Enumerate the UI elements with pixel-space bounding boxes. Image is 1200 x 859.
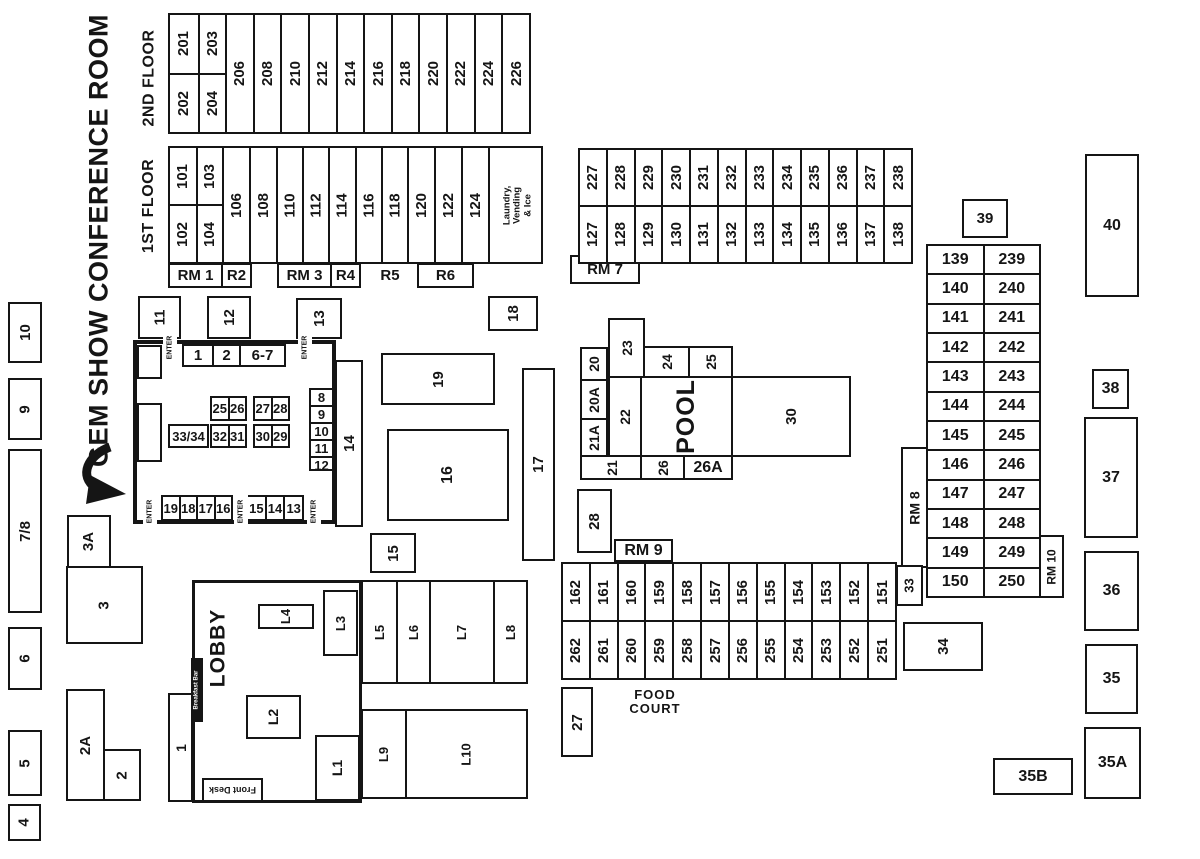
- table-33-34: 33/34: [168, 424, 209, 448]
- bottom-tables-left: 19181716: [161, 495, 233, 521]
- room-cell: 246: [985, 449, 1040, 478]
- room-cell: 150: [928, 567, 983, 596]
- room-cell: 155: [756, 564, 784, 620]
- room-7-8: 7/8: [8, 449, 42, 613]
- room-25: 25: [688, 346, 733, 378]
- table-27-28: 2728: [253, 396, 290, 421]
- table-cell: 26: [228, 398, 246, 419]
- room-202: 202: [170, 75, 198, 133]
- room-cell: 154: [784, 564, 812, 620]
- lobby-units-l9-l10: L9 L10: [361, 709, 528, 799]
- table-cell: 18: [179, 497, 197, 519]
- room-40: 40: [1085, 154, 1139, 297]
- room-37: 37: [1084, 417, 1138, 538]
- room-cell: 227: [580, 150, 606, 205]
- room-cell: 108: [249, 148, 276, 262]
- room-cell: 127: [580, 207, 606, 262]
- wall-alcove: [137, 403, 162, 462]
- conference-top-tables: 1 2 6-7: [182, 344, 286, 367]
- rm9-label: RM 9: [614, 539, 673, 562]
- first-floor-strip: 101 102 103 104 106108110112114116118120…: [168, 146, 543, 264]
- room-cell: 157: [700, 564, 728, 620]
- table-cell: 14: [265, 497, 284, 519]
- room-cell: 133: [745, 207, 773, 262]
- table-30-29: 3029: [253, 424, 290, 448]
- rooms-20-strip: 20 20A 21A: [580, 347, 608, 457]
- lobby-unit-l10: L10: [405, 711, 526, 797]
- room-cell: 162: [563, 564, 589, 620]
- table-cell: 32: [212, 426, 228, 446]
- room-cell: 143: [928, 361, 983, 390]
- table-cell: 11: [311, 439, 332, 456]
- room-36: 36: [1084, 551, 1139, 631]
- room-cell: 206: [225, 15, 253, 132]
- room-cell: 254: [784, 622, 812, 678]
- room-23: 23: [608, 318, 645, 378]
- room-cell: 132: [717, 207, 745, 262]
- room-33: 33: [896, 565, 923, 606]
- room-cell: 210: [280, 15, 308, 132]
- room-30: 30: [731, 376, 851, 457]
- room-104: 104: [198, 206, 222, 262]
- room-cell: 236: [828, 150, 856, 205]
- room-cell: 152: [839, 564, 867, 620]
- table-1: 1: [184, 346, 212, 365]
- table-cell: 30: [255, 426, 271, 446]
- curved-arrow-icon: [72, 442, 142, 508]
- room-3: 3: [66, 566, 143, 644]
- table-cell: 16: [214, 497, 232, 519]
- enter-door: ENTER: [307, 494, 321, 528]
- room-2a: 2A: [66, 689, 105, 801]
- room-15: 15: [370, 533, 416, 573]
- rm10-label: RM 10: [1039, 535, 1064, 598]
- food-court-label: FOOD COURT: [605, 682, 705, 722]
- lobby-unit-l8: L8: [493, 582, 526, 682]
- room-cell: 251: [867, 622, 895, 678]
- room-cell: 149: [928, 537, 983, 566]
- room-cell: 234: [772, 150, 800, 205]
- room-1: 1: [168, 693, 193, 802]
- room-cell: 260: [617, 622, 645, 678]
- room-cell: 248: [985, 508, 1040, 537]
- room-cell: 229: [634, 150, 662, 205]
- room-cell: 222: [446, 15, 474, 132]
- r6-label: R6: [417, 263, 474, 288]
- room-38: 38: [1092, 369, 1129, 409]
- room-19: 19: [381, 353, 495, 405]
- room-20: 20: [582, 349, 606, 379]
- lobby-units-l5-l8: L5 L6 L7 L8: [361, 580, 528, 684]
- side-table-stack: 89101112: [309, 388, 334, 471]
- room-cell: 250: [985, 567, 1040, 596]
- enter-door: ENTER: [163, 330, 177, 364]
- room-cell: 106: [222, 148, 249, 262]
- room-cell: 230: [661, 150, 689, 205]
- table-cell: 15: [248, 497, 265, 519]
- rm1-label: RM 1: [170, 265, 221, 286]
- lobby-unit-l3: L3: [323, 590, 358, 656]
- r4-label: R4: [330, 265, 359, 286]
- wall-alcove: [137, 345, 162, 379]
- second-floor-strip: 201 202 203 204 206208210212214216218220…: [168, 13, 531, 134]
- room-21a: 21A: [582, 418, 606, 455]
- room-cell: 244: [985, 391, 1040, 420]
- room-22: 22: [608, 376, 642, 457]
- laundry-vending-ice: Laundry, Vending & Ice: [488, 148, 546, 262]
- lobby-label: LOBBY: [198, 590, 238, 705]
- room-6: 6: [8, 627, 42, 690]
- page-title: GEM SHOW CONFERENCE ROOM: [76, 20, 122, 462]
- room-cell: 242: [985, 332, 1040, 361]
- room-26: 26: [640, 455, 685, 480]
- room-cell: 156: [728, 564, 756, 620]
- enter-door: ENTER: [234, 494, 248, 528]
- room-cell: 243: [985, 361, 1040, 390]
- room-cell: 258: [672, 622, 700, 678]
- room-cell: 122: [434, 148, 461, 262]
- room-cell: 235: [800, 150, 828, 205]
- room-cell: 249: [985, 537, 1040, 566]
- table-2: 2: [212, 346, 239, 365]
- table-cell: 10: [311, 422, 332, 439]
- room-3a: 3A: [67, 515, 111, 568]
- room-21: 21: [580, 455, 643, 480]
- table-cell: 19: [163, 497, 179, 519]
- room-26a: 26A: [683, 455, 733, 480]
- room-cell: 259: [644, 622, 672, 678]
- room-28: 28: [577, 489, 612, 553]
- room-cell: 151: [867, 564, 895, 620]
- room-cell: 159: [644, 564, 672, 620]
- enter-door: ENTER: [143, 494, 157, 528]
- room-14: 14: [335, 360, 363, 527]
- east-room-table: 139140141142143144145146147148149150 239…: [926, 244, 1041, 598]
- room-18: 18: [488, 296, 538, 331]
- room-cell: 214: [336, 15, 364, 132]
- room-204: 204: [200, 75, 226, 133]
- room-cell: 142: [928, 332, 983, 361]
- food-court-room-block: 162161160159158157156155154153152151 262…: [561, 562, 897, 680]
- room-24: 24: [643, 346, 690, 378]
- first-floor-label: 1ST FLOOR: [134, 146, 164, 266]
- room-cell: 136: [828, 207, 856, 262]
- room-cell: 160: [617, 564, 645, 620]
- room-cell: 220: [418, 15, 446, 132]
- second-floor-label: 2ND FLOOR: [134, 18, 164, 138]
- room-cell: 128: [606, 207, 634, 262]
- room-cell: 218: [391, 15, 419, 132]
- north-room-block: 227228229230231232233234235236237238 127…: [578, 148, 913, 264]
- room-cell: 232: [717, 150, 745, 205]
- enter-door: ENTER: [298, 330, 312, 364]
- rm1-r2-box: RM 1 R2: [168, 263, 252, 288]
- room-4: 4: [8, 804, 41, 841]
- room-35a: 35A: [1084, 727, 1141, 799]
- lobby-unit-l4: L4: [258, 604, 314, 629]
- room-cell: 118: [381, 148, 407, 262]
- room-cell: 247: [985, 479, 1040, 508]
- room-cell: 208: [253, 15, 281, 132]
- table-25-26: 2526: [210, 396, 247, 421]
- room-17: 17: [522, 368, 555, 561]
- room-cell: 137: [856, 207, 884, 262]
- room-cell: 147: [928, 479, 983, 508]
- room-cell: 112: [302, 148, 328, 262]
- table-cell: 12: [311, 456, 332, 473]
- room-9: 9: [8, 378, 42, 440]
- room-39: 39: [962, 199, 1008, 238]
- front-desk: Front Desk: [202, 778, 263, 802]
- table-cell: 17: [196, 497, 214, 519]
- room-cell: 224: [474, 15, 502, 132]
- room-cell: 252: [839, 622, 867, 678]
- room-cell: 124: [461, 148, 488, 262]
- room-cell: 158: [672, 564, 700, 620]
- table-32-31: 3231: [210, 424, 247, 448]
- table-cell: 28: [271, 398, 289, 419]
- room-cell: 262: [563, 622, 589, 678]
- room-cell: 240: [985, 273, 1040, 302]
- room-cell: 257: [700, 622, 728, 678]
- lobby-unit-l6: L6: [396, 582, 429, 682]
- room-cell: 138: [883, 207, 911, 262]
- room-cell: 145: [928, 420, 983, 449]
- room-2: 2: [103, 749, 141, 801]
- table-cell: 25: [212, 398, 228, 419]
- room-cell: 256: [728, 622, 756, 678]
- room-cell: 239: [985, 246, 1040, 273]
- room-cell: 231: [689, 150, 717, 205]
- room-10: 10: [8, 302, 42, 363]
- room-cell: 238: [883, 150, 911, 205]
- room-5: 5: [8, 730, 42, 796]
- room-cell: 116: [355, 148, 381, 262]
- table-cell: 13: [283, 497, 302, 519]
- room-35: 35: [1085, 644, 1138, 714]
- room-cell: 131: [689, 207, 717, 262]
- room-cell: 135: [800, 207, 828, 262]
- room-34: 34: [903, 622, 983, 671]
- r5-label: R5: [360, 263, 420, 288]
- room-cell: 212: [308, 15, 336, 132]
- table-6-7: 6-7: [239, 346, 284, 365]
- room-cell: 255: [756, 622, 784, 678]
- room-20a: 20A: [582, 379, 606, 418]
- room-cell: 129: [634, 207, 662, 262]
- bottom-tables-right: 151413: [246, 495, 304, 521]
- room-cell: 148: [928, 508, 983, 537]
- room-cell: 130: [661, 207, 689, 262]
- room-cell: 226: [501, 15, 529, 132]
- lobby-unit-l2: L2: [246, 695, 301, 739]
- room-27: 27: [561, 687, 593, 757]
- room-cell: 144: [928, 391, 983, 420]
- room-cell: 237: [856, 150, 884, 205]
- room-201: 201: [170, 15, 198, 75]
- rm3-r4-box: RM 3 R4: [277, 263, 361, 288]
- room-cell: 161: [589, 564, 617, 620]
- room-cell: 228: [606, 150, 634, 205]
- rm8-label: RM 8: [901, 447, 928, 568]
- room-102: 102: [170, 206, 196, 262]
- lobby-unit-l9: L9: [363, 711, 405, 797]
- room-203: 203: [200, 15, 226, 75]
- floor-plan: GEM SHOW CONFERENCE ROOM 2ND FLOOR 1ST F…: [0, 0, 1200, 859]
- room-cell: 233: [745, 150, 773, 205]
- table-cell: 27: [255, 398, 271, 419]
- room-cell: 216: [363, 15, 391, 132]
- room-12: 12: [207, 296, 251, 339]
- r2-label: R2: [221, 265, 250, 286]
- lobby-unit-l1: L1: [315, 735, 360, 801]
- table-cell: 8: [311, 390, 332, 405]
- room-cell: 253: [811, 622, 839, 678]
- room-cell: 241: [985, 303, 1040, 332]
- table-cell: 31: [228, 426, 246, 446]
- room-cell: 114: [328, 148, 354, 262]
- room-cell: 261: [589, 622, 617, 678]
- room-cell: 120: [407, 148, 434, 262]
- room-cell: 134: [772, 207, 800, 262]
- room-cell: 141: [928, 303, 983, 332]
- room-cell: 139: [928, 246, 983, 273]
- room-cell: 110: [276, 148, 302, 262]
- pool-area: POOL: [640, 376, 733, 457]
- room-cell: 146: [928, 449, 983, 478]
- room-cell: 245: [985, 420, 1040, 449]
- rm3-label: RM 3: [279, 265, 330, 286]
- lobby-unit-l5: L5: [363, 582, 396, 682]
- room-cell: 140: [928, 273, 983, 302]
- room-16: 16: [387, 429, 509, 521]
- table-cell: 29: [271, 426, 289, 446]
- table-cell: 9: [311, 405, 332, 422]
- lobby-unit-l7: L7: [429, 582, 493, 682]
- room-cell: 153: [811, 564, 839, 620]
- room-103: 103: [198, 148, 222, 206]
- room-35b: 35B: [993, 758, 1073, 795]
- room-101: 101: [170, 148, 196, 206]
